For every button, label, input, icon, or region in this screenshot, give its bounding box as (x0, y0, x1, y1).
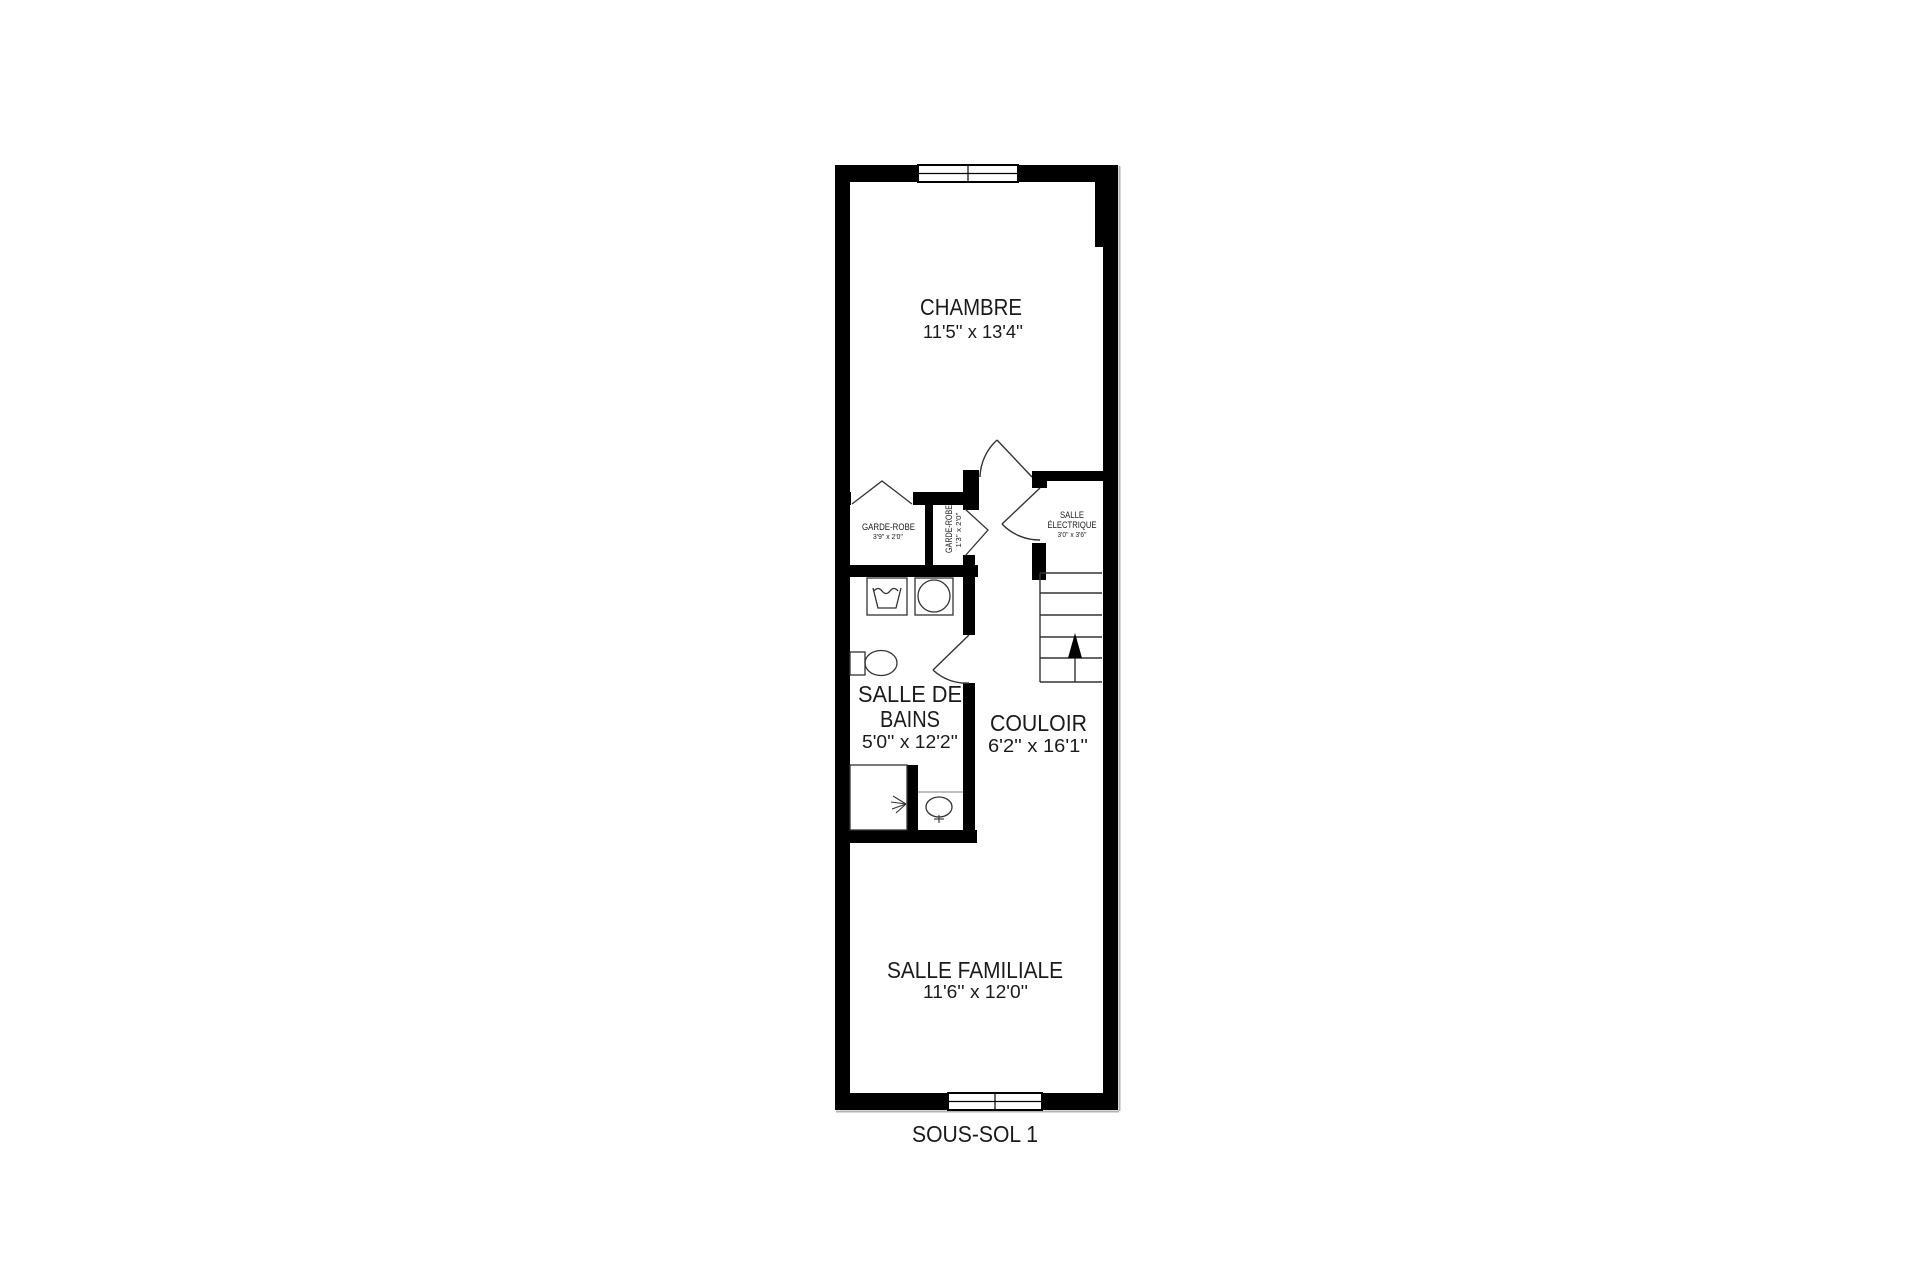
door-salle-de-bains (933, 635, 969, 683)
salle-familiale-label: SALLE FAMILIALE (887, 957, 1063, 983)
window-bottom (948, 1093, 1042, 1110)
salle-familiale-dimensions: 11'6'' x 12'0'' (923, 982, 1028, 1002)
salle-de-bains-label-line2: BAINS (880, 706, 940, 732)
window-top (918, 165, 1018, 182)
sink-icon (918, 792, 963, 823)
chambre-dimensions: 11'5'' x 13'4'' (923, 322, 1023, 342)
wall-between-closets (925, 505, 933, 567)
garde-robe-2-label: GARDE-ROBE (944, 505, 954, 553)
laundry-tub-icon (867, 578, 907, 615)
staircase (1040, 573, 1102, 682)
chambre-label: CHAMBRE (920, 294, 1022, 320)
salle-electrique-label-line2: ÉLECTRIQUE (1048, 520, 1097, 530)
door-swing-arc (1002, 524, 1040, 540)
labels: CHAMBRE 11'5'' x 13'4'' GARDE-ROBE 3'9''… (858, 294, 1097, 1147)
garde-robe-label: GARDE-ROBE (862, 522, 915, 532)
garde-robe-dimensions: 3'9'' x 2'0'' (873, 532, 904, 541)
salle-electrique-dimensions: 3'0'' x 3'6'' (1058, 530, 1087, 539)
shower-icon (850, 765, 907, 830)
bifold-door-garde-robe-2 (965, 509, 988, 556)
salle-electrique-label-line1: SALLE (1060, 510, 1084, 520)
floor-plan-canvas: CHAMBRE 11'5'' x 13'4'' GARDE-ROBE 3'9''… (0, 0, 1920, 1278)
door-salle-electrique (1002, 488, 1040, 540)
wall-bathroom-divider (907, 765, 918, 830)
salle-de-bains-label-line1: SALLE DE (858, 681, 962, 707)
bifold-door-garde-robe (852, 481, 912, 504)
washer-icon (915, 578, 953, 615)
wall-couloir-left-lower (963, 683, 975, 840)
wall-door-jamb-electrique (1032, 471, 1047, 488)
wall-chambre-south-left-a (835, 492, 851, 505)
garde-robe-2-dimensions: 1'3'' x 2'0'' (954, 512, 963, 548)
plan-title: SOUS-SOL 1 (912, 1121, 1038, 1147)
couloir-dimensions: 6'2'' x 16'1'' (988, 736, 1088, 756)
exterior-wall-right-upper (1095, 165, 1118, 247)
couloir-label: COULOIR (990, 710, 1087, 736)
wall-electrique-left-stub (1032, 543, 1046, 580)
door-swing-arc (980, 440, 997, 477)
exterior-wall-left (835, 165, 850, 1110)
door-leaf (997, 440, 1032, 477)
wall-bathroom-bottom (835, 830, 977, 843)
door-leaf (1002, 488, 1040, 524)
door-leaf (933, 635, 969, 670)
wall-chambre-south-left-b (913, 492, 975, 505)
toilet-icon (850, 651, 897, 676)
shower-head-spray-icon (891, 796, 906, 813)
exterior-wall-right (1103, 247, 1118, 1110)
door-chambre (980, 440, 1032, 477)
salle-de-bains-dimensions: 5'0'' x 12'2'' (862, 732, 958, 752)
wall-closet-bottom (835, 565, 978, 577)
